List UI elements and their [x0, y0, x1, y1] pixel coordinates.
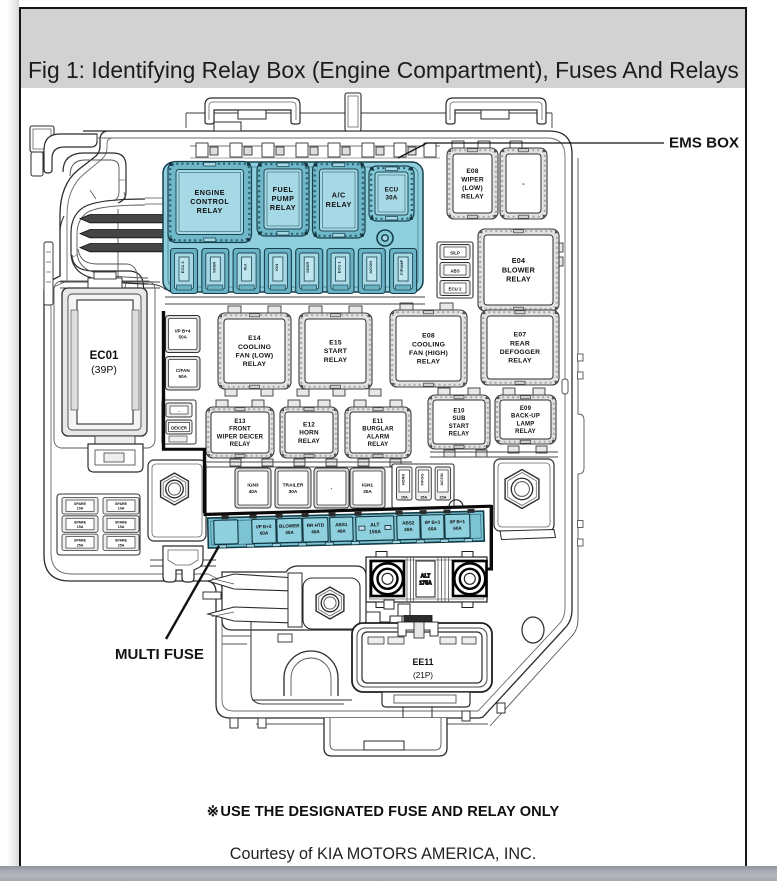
svg-text:IGN3: IGN3: [247, 483, 259, 489]
svg-text:(21P): (21P): [413, 671, 433, 680]
svg-text:ECU 2: ECU 2: [449, 286, 462, 291]
svg-text:10A: 10A: [77, 507, 84, 511]
svg-text:E09: E09: [520, 406, 532, 412]
svg-text:40A: 40A: [249, 489, 258, 495]
svg-text:25A: 25A: [77, 543, 84, 547]
svg-text:SPARE: SPARE: [74, 502, 87, 506]
svg-text:DEICER: DEICER: [171, 426, 187, 431]
svg-text:I/P B+1: I/P B+1: [450, 519, 466, 524]
svg-text:E08: E08: [466, 168, 478, 175]
svg-text:E08: E08: [422, 333, 435, 340]
svg-text:CONTROL: CONTROL: [190, 197, 229, 206]
svg-text:40A: 40A: [285, 530, 294, 535]
svg-text:RELAY: RELAY: [326, 200, 352, 209]
svg-text:15A: 15A: [77, 525, 84, 529]
svg-text:BLOWER: BLOWER: [502, 265, 536, 274]
svg-text:RELAY: RELAY: [197, 206, 223, 215]
svg-text:SPARE: SPARE: [115, 539, 128, 543]
svg-text:REAR: REAR: [510, 340, 530, 347]
svg-text:RELAY: RELAY: [515, 429, 536, 435]
svg-text:F/PUMP: F/PUMP: [399, 259, 404, 274]
svg-text:ABS1: ABS1: [335, 522, 348, 527]
svg-text:E14: E14: [248, 335, 261, 342]
svg-text:E11: E11: [373, 419, 384, 425]
svg-text:I/P B+3: I/P B+3: [425, 520, 441, 525]
svg-text:IGN: IGN: [274, 264, 279, 271]
svg-text:EE11: EE11: [412, 657, 433, 667]
svg-text:40A: 40A: [311, 529, 320, 534]
svg-text:SNSR: SNSR: [305, 262, 310, 273]
svg-text:RR HTD: RR HTD: [307, 523, 325, 528]
svg-text:C/FAN: C/FAN: [176, 368, 190, 373]
svg-text:15A: 15A: [420, 496, 427, 500]
svg-text:50A: 50A: [179, 374, 188, 379]
svg-text:50A: 50A: [179, 335, 188, 340]
svg-text:SNSR: SNSR: [211, 262, 216, 273]
svg-text:RELAY: RELAY: [368, 442, 389, 448]
svg-text:15A: 15A: [401, 496, 408, 500]
svg-text:HORN: HORN: [401, 474, 405, 485]
svg-text:ABS2: ABS2: [402, 520, 415, 525]
svg-text:FRONT: FRONT: [229, 427, 251, 433]
svg-text:BLOWER: BLOWER: [279, 523, 300, 529]
svg-text:RELAY: RELAY: [298, 438, 321, 445]
svg-text:60A: 60A: [453, 526, 462, 531]
svg-text:(39P): (39P): [91, 364, 117, 376]
svg-text:E04: E04: [512, 256, 525, 265]
svg-text:E15: E15: [329, 340, 342, 347]
svg-text:HORN: HORN: [299, 430, 319, 437]
svg-text:RELAY: RELAY: [461, 193, 484, 200]
svg-text:A/CON: A/CON: [368, 261, 373, 274]
svg-text:ECU: ECU: [385, 186, 399, 193]
svg-text:INJ: INJ: [243, 264, 248, 270]
svg-text:TRAILER: TRAILER: [283, 483, 304, 489]
svg-text:RELAY: RELAY: [506, 275, 531, 284]
svg-text:15A: 15A: [118, 525, 125, 529]
svg-text:MULTI FUSE: MULTI FUSE: [115, 646, 204, 663]
svg-text:RELAY: RELAY: [449, 431, 470, 437]
svg-text:60A: 60A: [260, 531, 269, 536]
svg-text:RELAY: RELAY: [417, 359, 441, 366]
svg-text:ECU 1: ECU 1: [337, 261, 342, 274]
svg-text:ECU 3: ECU 3: [180, 261, 185, 274]
svg-text:15A: 15A: [439, 496, 446, 500]
svg-text:RELAY: RELAY: [324, 357, 348, 364]
svg-text:RELAY: RELAY: [508, 358, 532, 365]
svg-text:IGN1: IGN1: [362, 483, 374, 489]
svg-text:60A: 60A: [428, 526, 437, 531]
svg-text:SPARE: SPARE: [115, 502, 128, 506]
svg-text:FAN (HIGH): FAN (HIGH): [409, 350, 448, 357]
svg-text:I/P B+2: I/P B+2: [256, 524, 272, 529]
svg-text:RELAY: RELAY: [230, 442, 251, 448]
svg-text:A/C: A/C: [332, 191, 346, 200]
svg-text:BURGLAR: BURGLAR: [362, 427, 394, 433]
svg-text:SPARE: SPARE: [74, 539, 87, 543]
svg-text:SUB: SUB: [452, 416, 466, 422]
svg-text:E10: E10: [453, 408, 465, 414]
svg-text:10A: 10A: [118, 507, 125, 511]
svg-text:30A: 30A: [289, 489, 298, 495]
svg-text:PUMP: PUMP: [272, 194, 295, 203]
svg-text:COOLING: COOLING: [238, 344, 271, 351]
svg-text:ALARM: ALARM: [367, 434, 390, 440]
svg-text:25A: 25A: [118, 543, 125, 547]
svg-text:FUEL: FUEL: [273, 185, 294, 194]
svg-text:S/LP: S/LP: [450, 250, 460, 255]
svg-text:175A: 175A: [419, 581, 432, 587]
svg-text:ABS: ABS: [450, 268, 459, 273]
svg-text:I/P B+4: I/P B+4: [175, 329, 191, 334]
svg-text:RELAY: RELAY: [243, 361, 267, 368]
svg-text:30A: 30A: [386, 194, 398, 201]
svg-text:E13: E13: [234, 419, 246, 425]
svg-text:E12: E12: [303, 421, 315, 428]
svg-text:WIPER DEICER: WIPER DEICER: [217, 434, 264, 440]
svg-text:START: START: [324, 348, 348, 355]
svg-text:COOLING: COOLING: [412, 341, 445, 348]
svg-text:30A: 30A: [363, 489, 372, 495]
svg-text:F/FOG: F/FOG: [421, 474, 425, 486]
svg-text:E07: E07: [514, 332, 527, 339]
svg-text:(LOW): (LOW): [462, 185, 483, 192]
svg-text:ALT: ALT: [421, 574, 432, 580]
svg-text:ALT: ALT: [370, 522, 380, 528]
svg-text:EMS BOX: EMS BOX: [669, 135, 739, 152]
svg-text:ENGINE: ENGINE: [194, 188, 225, 197]
svg-text:DEFOGGER: DEFOGGER: [500, 349, 541, 356]
svg-text:SPARE: SPARE: [74, 520, 87, 524]
svg-text:150A: 150A: [369, 529, 381, 535]
svg-text:40A: 40A: [337, 529, 346, 534]
svg-text:BACK-UP: BACK-UP: [511, 414, 540, 420]
svg-text:SPARE: SPARE: [115, 520, 128, 524]
svg-text:A/CON: A/CON: [440, 473, 444, 485]
svg-text:EC01: EC01: [90, 350, 119, 362]
svg-text:40A: 40A: [404, 527, 413, 532]
svg-text:FAN (LOW): FAN (LOW): [236, 353, 274, 360]
svg-text:LAMP: LAMP: [517, 421, 535, 427]
svg-text:START: START: [449, 424, 470, 430]
svg-text:WIPER: WIPER: [461, 176, 484, 183]
svg-text:RELAY: RELAY: [270, 203, 296, 212]
